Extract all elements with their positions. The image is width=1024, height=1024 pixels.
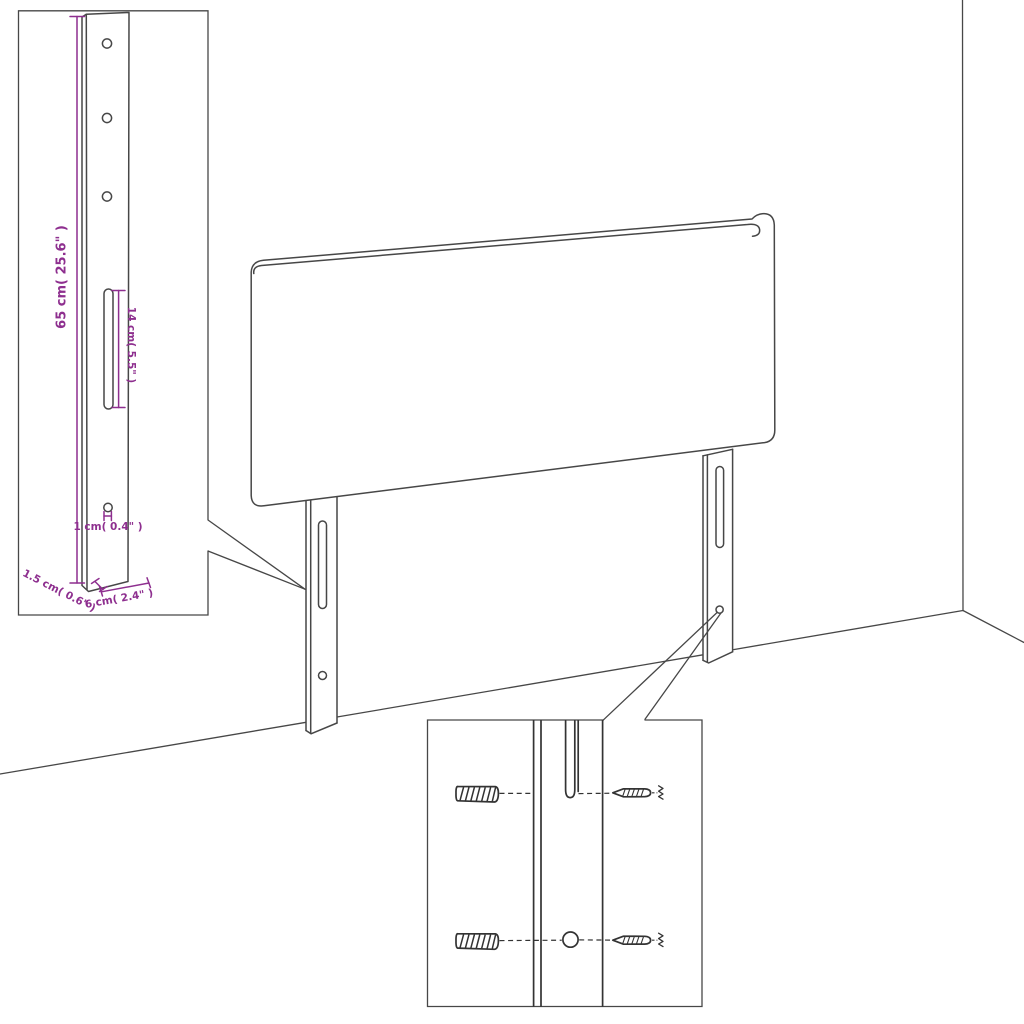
floor-line-corner-right (963, 611, 1024, 643)
headboard-panel (251, 214, 775, 506)
headboard-leg-left (306, 465, 337, 734)
dimension-label-hole-diameter: 1 cm( 0.4" ) (73, 521, 142, 533)
dimension-label-leg-height: 65 cm( 25.6" ) (54, 225, 69, 329)
leg-slot (319, 521, 327, 609)
leg-hole-bottom (104, 503, 112, 511)
diagram-canvas: 65 cm( 25.6" ) 14 cm( 5.5" ) 1 cm( 0.4" … (0, 0, 1024, 1024)
callout-leaders (208, 520, 721, 720)
leg-hole-top (102, 39, 111, 48)
dimension-label-slot-length: 14 cm( 5.5" ) (125, 307, 137, 383)
leg-hole-lower (102, 192, 111, 201)
floor-line-right (734, 611, 964, 650)
detail-inset-bottom (428, 720, 703, 1007)
wall-plug-icon (456, 934, 498, 950)
leg-detail-drawing (82, 13, 129, 592)
floor-line-left (0, 722, 306, 774)
floor-line-middle (337, 655, 703, 717)
wall-plug-icon (456, 786, 498, 802)
headboard-leg-right (703, 436, 733, 663)
leg-slot-detail (104, 289, 113, 409)
wall-corner-line (963, 0, 964, 611)
leg-hole (319, 672, 327, 680)
leg-hole-middle (102, 113, 111, 122)
line-art (0, 0, 1024, 1024)
leg-slot (716, 467, 724, 548)
hole-detail (563, 932, 578, 947)
